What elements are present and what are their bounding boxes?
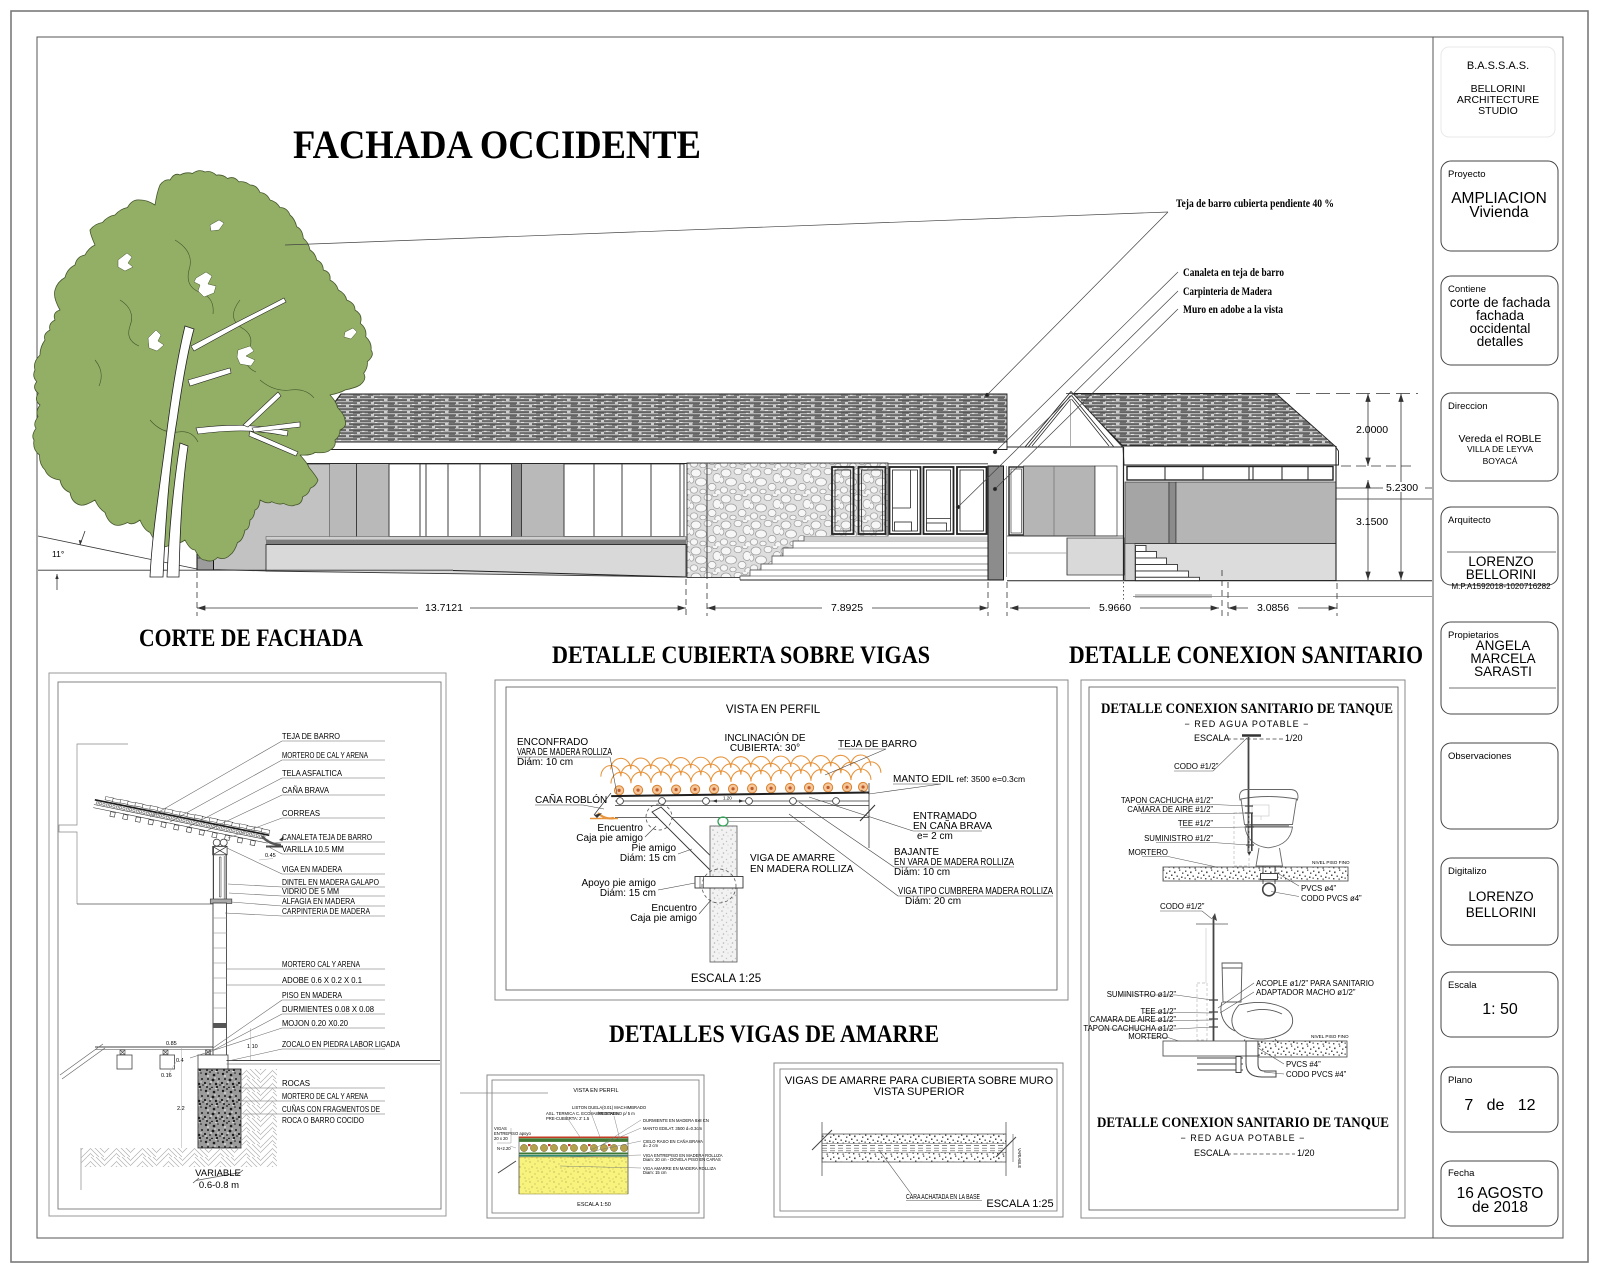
svg-text:− RED AGUA POTABLE −: − RED AGUA POTABLE − — [1185, 719, 1310, 729]
svg-text:BOYACÁ: BOYACÁ — [1483, 456, 1518, 466]
svg-text:TEJA DE BARRO: TEJA DE BARRO — [282, 732, 340, 741]
svg-text:NEOPRENO p/ 5 m: NEOPRENO p/ 5 m — [598, 1111, 635, 1116]
svg-text:Diám: 15 cm: Diám: 15 cm — [620, 853, 676, 864]
svg-text:VARIABLE: VARIABLE — [1017, 1148, 1022, 1168]
svg-text:1: 50: 1: 50 — [1482, 1001, 1518, 1018]
svg-text:B.A.S.S.A.S.: B.A.S.S.A.S. — [1467, 60, 1529, 72]
svg-text:Diam: 20 cm - DOVELA PISO EN C: Diam: 20 cm - DOVELA PISO EN CARAS — [643, 1157, 721, 1162]
svg-text:ADAPTADOR MACHO ø1/2”: ADAPTADOR MACHO ø1/2” — [1256, 988, 1356, 997]
svg-text:Diám: 15 cm: Diám: 15 cm — [600, 888, 656, 899]
svg-text:PISO EN MADERA: PISO EN MADERA — [282, 991, 342, 1000]
svg-text:MORTERO: MORTERO — [1128, 848, 1168, 857]
svg-text:0.4: 0.4 — [176, 1058, 184, 1064]
svg-text:DETALLE CONEXION SANITARIO DE: DETALLE CONEXION SANITARIO DE TANQUE — [1097, 1115, 1389, 1131]
svg-text:CODO PVCS #4”: CODO PVCS #4” — [1286, 1070, 1347, 1079]
svg-text:Plano: Plano — [1448, 1075, 1472, 1086]
svg-text:3.1500: 3.1500 — [1356, 516, 1388, 528]
svg-text:MORTERO DE CAL Y ARENA: MORTERO DE CAL Y ARENA — [282, 1092, 368, 1101]
svg-text:Contiene: Contiene — [1448, 284, 1486, 295]
svg-text:Digitalizo: Digitalizo — [1448, 866, 1487, 877]
svg-text:ADOBE 0.6 X 0.2 X 0.1: ADOBE 0.6 X 0.2 X 0.1 — [282, 976, 362, 985]
svg-text:VILLA DE LEYVA: VILLA DE LEYVA — [1467, 444, 1533, 454]
svg-text:e= 2 cm: e= 2 cm — [917, 831, 953, 842]
svg-text:13.7121: 13.7121 — [425, 602, 463, 614]
svg-text:MANTO EDILAT. 3500 d=0.3cm: MANTO EDILAT. 3500 d=0.3cm — [643, 1126, 703, 1131]
svg-text:VARILLA 10.5 MM: VARILLA 10.5 MM — [282, 845, 344, 854]
svg-text:CODO #1/2”: CODO #1/2” — [1174, 762, 1219, 771]
svg-text:CORREAS: CORREAS — [282, 809, 320, 818]
svg-text:0.6-0.8 m: 0.6-0.8 m — [199, 1180, 239, 1191]
svg-text:CANALETA TEJA DE BARRO: CANALETA TEJA DE BARRO — [282, 833, 372, 842]
svg-text:VARIABLE: VARIABLE — [195, 1168, 241, 1179]
svg-text:PRE-CUBIERTA: 2' 1.5: PRE-CUBIERTA: 2' 1.5 — [546, 1116, 590, 1121]
svg-text:LISTON DUELA(0.01) MACHIMBRADO: LISTON DUELA(0.01) MACHIMBRADO — [572, 1105, 647, 1110]
svg-text:Carpinteria de Madera: Carpinteria de Madera — [1183, 286, 1272, 298]
svg-text:CARPINTERIA DE MADERA: CARPINTERIA DE MADERA — [282, 907, 370, 916]
svg-text:CAMARA DE AIRE #1/2”: CAMARA DE AIRE #1/2” — [1127, 805, 1213, 814]
svg-text:ZOCALO EN PIEDRA LABOR LIGADA: ZOCALO EN PIEDRA LABOR LIGADA — [282, 1040, 400, 1049]
svg-text:2.2: 2.2 — [177, 1106, 185, 1112]
svg-text:DETALLE CONEXION SANITARIO: DETALLE CONEXION SANITARIO — [1069, 642, 1423, 669]
svg-text:NIVEL PISO FINO: NIVEL PISO FINO — [1311, 1034, 1349, 1039]
svg-text:0.16: 0.16 — [161, 1073, 172, 1079]
svg-text:TEE #1/2”: TEE #1/2” — [1178, 819, 1214, 828]
svg-text:ESCALA 1:50: ESCALA 1:50 — [577, 1202, 611, 1208]
svg-text:EN MADERA ROLLIZA: EN MADERA ROLLIZA — [750, 864, 854, 875]
svg-text:5.9660: 5.9660 — [1099, 602, 1131, 614]
svg-text:M.P.A1592018-1020716282: M.P.A1592018-1020716282 — [1451, 582, 1551, 591]
svg-text:SARASTI: SARASTI — [1474, 664, 1532, 679]
svg-text:MORTERO DE CAL Y ARENA: MORTERO DE CAL Y ARENA — [282, 751, 368, 760]
svg-text:PVCS #4”: PVCS #4” — [1286, 1060, 1321, 1069]
svg-text:Diam: 15 cm: Diam: 15 cm — [643, 1170, 667, 1175]
svg-text:1/20: 1/20 — [1297, 1148, 1315, 1158]
svg-text:ESCALA 1:25: ESCALA 1:25 — [691, 973, 761, 985]
svg-text:Canaleta en teja de barro: Canaleta en teja de barro — [1183, 267, 1284, 279]
svg-text:VIGA DE AMARRE: VIGA DE AMARRE — [750, 853, 835, 864]
svg-text:DINTEL EN MADERA GALAPO: DINTEL EN MADERA GALAPO — [282, 878, 379, 887]
svg-text:NIVEL PISO FINO: NIVEL PISO FINO — [1312, 860, 1350, 865]
svg-text:3.0856: 3.0856 — [1257, 602, 1289, 614]
svg-text:Arquitecto: Arquitecto — [1448, 515, 1491, 526]
svg-text:ESCALA: ESCALA — [1194, 1148, 1230, 1158]
svg-text:BELLORINI: BELLORINI — [1466, 567, 1537, 582]
svg-text:PVCS ø4”: PVCS ø4” — [1301, 884, 1336, 893]
svg-text:VIGA EN MADERA: VIGA EN MADERA — [282, 865, 342, 874]
svg-text:Direccion: Direccion — [1448, 401, 1488, 412]
svg-text:1.20: 1.20 — [723, 796, 732, 801]
svg-text:DETALLE CUBIERTA SOBRE VIGAS: DETALLE CUBIERTA SOBRE VIGAS — [552, 642, 930, 669]
svg-text:de 2018: de 2018 — [1472, 1199, 1528, 1216]
svg-text:TEJA DE BARRO: TEJA DE BARRO — [838, 739, 917, 750]
svg-text:BELLORINI: BELLORINI — [1466, 905, 1537, 920]
svg-text:ROCA O BARRO COCIDO: ROCA O BARRO COCIDO — [282, 1116, 364, 1125]
svg-text:ROCAS: ROCAS — [282, 1079, 311, 1088]
svg-text:d= 2 cm: d= 2 cm — [643, 1143, 659, 1148]
svg-text:2.0000: 2.0000 — [1356, 424, 1388, 436]
svg-text:CODO #1/2”: CODO #1/2” — [1160, 902, 1205, 911]
svg-text:VIDRIO DE 5 MM: VIDRIO DE 5 MM — [282, 887, 339, 896]
svg-text:MANTO EDIL ref: 3500 e=0.3cm: MANTO EDIL ref: 3500 e=0.3cm — [893, 774, 1025, 785]
svg-text:0.45: 0.45 — [265, 853, 276, 859]
svg-text:Proyecto: Proyecto — [1448, 169, 1486, 180]
svg-text:Escala: Escala — [1448, 980, 1477, 991]
svg-text:DETALLES VIGAS DE AMARRE: DETALLES VIGAS DE AMARRE — [609, 1021, 939, 1048]
svg-text:CARA ACHATADA EN LA BASE: CARA ACHATADA EN LA BASE — [906, 1194, 980, 1201]
svg-text:ESCALA 1:25: ESCALA 1:25 — [986, 1198, 1053, 1210]
svg-text:TAPON CACHUCHA #1/2”: TAPON CACHUCHA #1/2” — [1121, 796, 1214, 805]
svg-text:TELA ASFALTICA: TELA ASFALTICA — [282, 769, 342, 778]
svg-text:DURMIENTE EN MADERA 8x8 CN: DURMIENTE EN MADERA 8x8 CN — [643, 1118, 709, 1123]
svg-text:CUÑAS CON FRAGMENTOS DE: CUÑAS CON FRAGMENTOS DE — [282, 1104, 380, 1114]
svg-text:DETALLE CONEXION SANITARIO DE: DETALLE CONEXION SANITARIO DE TANQUE — [1101, 701, 1393, 717]
svg-text:Observaciones: Observaciones — [1448, 751, 1512, 762]
svg-text:− RED AGUA POTABLE −: − RED AGUA POTABLE − — [1181, 1133, 1306, 1143]
svg-text:STUDIO: STUDIO — [1478, 105, 1518, 117]
svg-text:MORTERO: MORTERO — [1128, 1032, 1168, 1041]
svg-text:CAMARA DE AIRE ø1/2”: CAMARA DE AIRE ø1/2” — [1090, 1015, 1177, 1024]
svg-text:20 x 20: 20 x 20 — [494, 1136, 508, 1141]
svg-text:MORTERO CAL Y ARENA: MORTERO CAL Y ARENA — [282, 960, 360, 969]
svg-text:Teja de barro cubierta pendien: Teja de barro cubierta pendiente 40 % — [1176, 198, 1334, 210]
svg-text:7 de 12: 7 de 12 — [1464, 1097, 1535, 1114]
svg-text:SUMINISTRO ø1/2”: SUMINISTRO ø1/2” — [1107, 990, 1177, 999]
svg-text:CUBIERTA: 30°: CUBIERTA: 30° — [730, 743, 800, 754]
svg-text:ESCALA: ESCALA — [1194, 733, 1230, 743]
svg-text:VISTA EN PERFIL: VISTA EN PERFIL — [573, 1088, 618, 1094]
svg-text:Diám: 10 cm: Diám: 10 cm — [517, 757, 573, 768]
svg-text:SUMINISTRO #1/2”: SUMINISTRO #1/2” — [1144, 834, 1213, 843]
svg-text:Muro en adobe a la vista: Muro en adobe a la vista — [1183, 304, 1283, 316]
svg-text:ACOPLE ø1/2” PARA SANITARIO: ACOPLE ø1/2” PARA SANITARIO — [1256, 979, 1374, 988]
svg-text:ALFAGIA EN MADERA: ALFAGIA EN MADERA — [282, 897, 355, 906]
svg-text:5.2300: 5.2300 — [1386, 482, 1418, 494]
svg-text:Diám: 20 cm: Diám: 20 cm — [905, 896, 961, 907]
svg-text:CAÑA BRAVA: CAÑA BRAVA — [282, 785, 329, 795]
svg-text:Caja pie amigo: Caja pie amigo — [630, 913, 697, 924]
svg-text:VISTA EN PERFIL: VISTA EN PERFIL — [726, 704, 821, 716]
svg-text:CORTE DE FACHADA: CORTE DE FACHADA — [139, 625, 363, 652]
svg-text:detalles: detalles — [1477, 334, 1524, 349]
svg-text:LORENZO: LORENZO — [1468, 889, 1533, 904]
svg-text:1/20: 1/20 — [1285, 733, 1303, 743]
svg-text:11°: 11° — [52, 549, 64, 559]
svg-text:Diám: 10 cm: Diám: 10 cm — [894, 867, 950, 878]
svg-text:CAÑA ROBLÓN: CAÑA ROBLÓN — [535, 793, 607, 806]
svg-text:Fecha: Fecha — [1448, 1168, 1475, 1179]
svg-text:0.85: 0.85 — [166, 1041, 177, 1047]
svg-text:FACHADA OCCIDENTE: FACHADA OCCIDENTE — [293, 122, 701, 167]
svg-text:VISTA SUPERIOR: VISTA SUPERIOR — [874, 1086, 965, 1098]
svg-text:DURMIENTES 0.08 X 0.08: DURMIENTES 0.08 X 0.08 — [282, 1005, 374, 1014]
svg-text:1.10: 1.10 — [247, 1044, 258, 1050]
svg-text:Vivienda: Vivienda — [1469, 204, 1529, 221]
svg-text:CODO PVCS ø4”: CODO PVCS ø4” — [1301, 894, 1362, 903]
svg-text:MOJON 0.20 X0.20: MOJON 0.20 X0.20 — [282, 1019, 348, 1028]
svg-text:7.8925: 7.8925 — [831, 602, 863, 614]
svg-text:N+2.20: N+2.20 — [497, 1146, 511, 1151]
